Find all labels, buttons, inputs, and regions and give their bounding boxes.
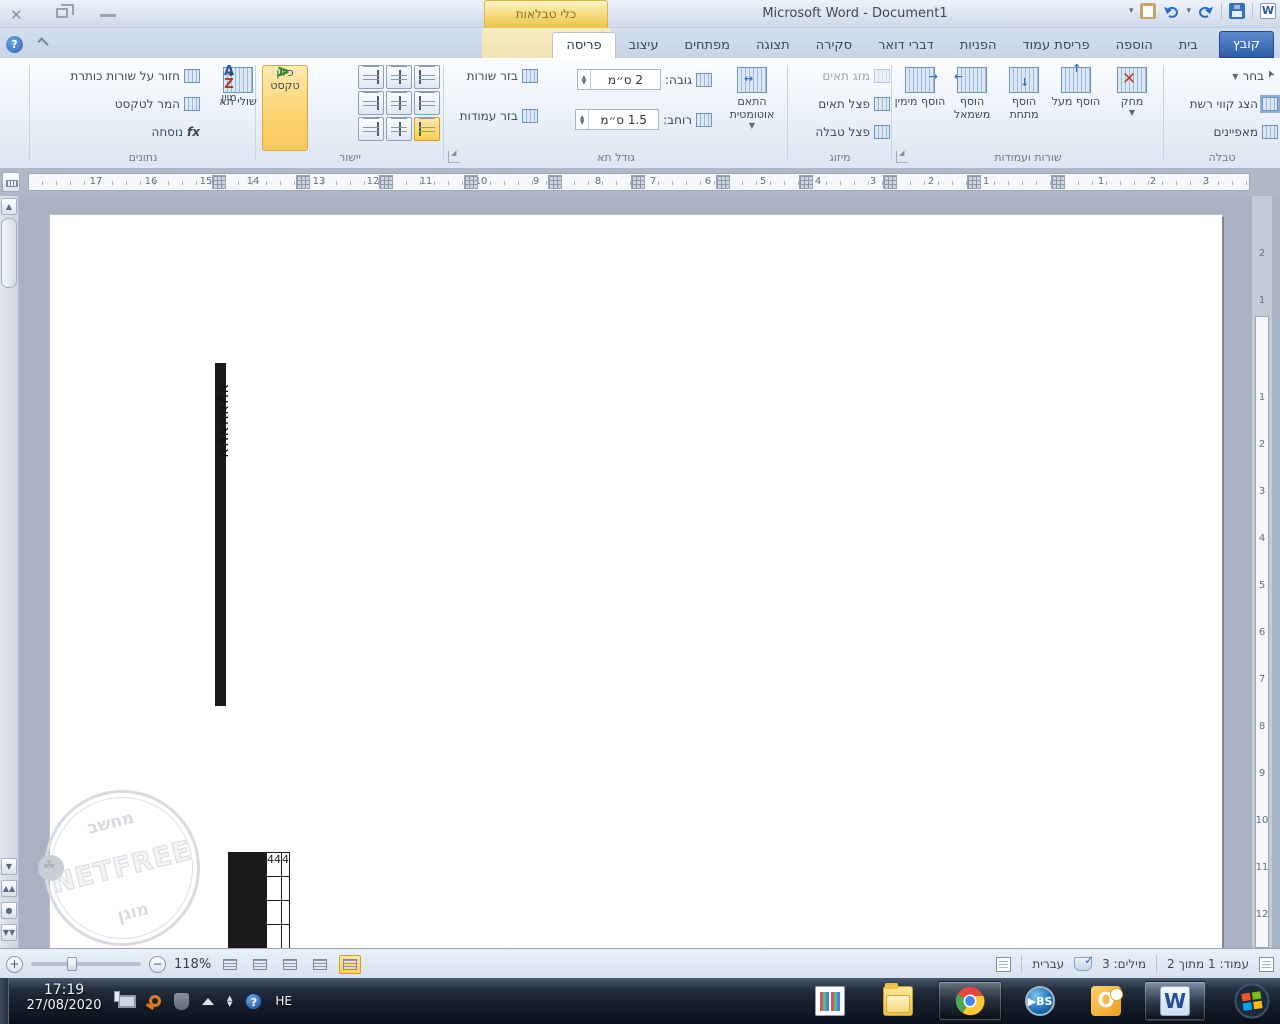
- undo-icon[interactable]: [1163, 4, 1179, 19]
- ribbon-group-alignment: A כיוון טקסט שולי תא יישור: [258, 61, 442, 165]
- ruler-number: 3: [1252, 486, 1272, 497]
- previous-page-icon[interactable]: ▲▲: [1, 880, 17, 897]
- autofit-button[interactable]: ↔ התאם אוטומטית ▼: [720, 65, 784, 151]
- tab-home[interactable]: בית: [1166, 33, 1211, 58]
- ruler-number: 10: [1252, 815, 1272, 826]
- ruler-number: 1: [1252, 295, 1272, 306]
- chevron-down-icon: ▼: [1232, 72, 1238, 81]
- ribbon: בחר▼ הצג קווי רשת מאפיינים טבלה ✕ מחק ▼ …: [0, 58, 1280, 168]
- zoom-in-icon[interactable]: +: [6, 956, 23, 973]
- zoom-percentage[interactable]: 118%: [174, 957, 211, 972]
- taskbar-app-explorer[interactable]: [874, 981, 922, 1021]
- split-cells-button[interactable]: פצל תאים: [818, 97, 890, 111]
- ribbon-group-data: AZ↓ מיין חזור על שורות כותרת המר לטקסט f…: [32, 61, 254, 165]
- insert-right-icon: →: [905, 67, 935, 93]
- shield-tray-icon[interactable]: [174, 993, 189, 1010]
- watermark-leaf-icon: [38, 855, 64, 881]
- group-label-alignment: יישור: [258, 151, 442, 164]
- hidden-icons-chevron[interactable]: [202, 998, 214, 1005]
- table-cell[interactable]: [225, 479, 226, 504]
- titlebar: ✕ כלי טבלאות Microsoft Word - Document1 …: [0, 0, 1280, 28]
- convert-to-text-icon: [184, 97, 200, 111]
- ruler-number: 12: [1252, 909, 1272, 920]
- ruler-number: 11: [1252, 862, 1272, 873]
- ruler-number: 14: [247, 176, 260, 187]
- ruler-number: 4: [1252, 533, 1272, 544]
- insert-right-button[interactable]: → הוסף מימין: [894, 65, 946, 151]
- view-outline-icon[interactable]: [249, 955, 271, 974]
- tab-review[interactable]: סקירה: [803, 33, 865, 58]
- row-height-icon: [696, 73, 712, 87]
- ruler-number: 1: [983, 176, 989, 187]
- table-cell[interactable]: [267, 877, 282, 901]
- zoom-slider[interactable]: [31, 962, 141, 966]
- column-width-spinner[interactable]: ▲▼ 1.5 ס״מ: [575, 109, 659, 130]
- tray-arrows-icon[interactable]: ▲▼: [227, 995, 232, 1007]
- horizontal-ruler[interactable]: 1716151413121110987654321123: [28, 173, 1250, 191]
- zoom-out-icon[interactable]: −: [149, 956, 166, 973]
- table-cell[interactable]: 44: [267, 853, 282, 877]
- ribbon-group-cell-size: ↔ התאם אוטומטית ▼ גובה: ▲▼ 2 ס״מ רוחב: ▲…: [446, 61, 786, 165]
- taskbar-app-chrome[interactable]: [938, 981, 1002, 1021]
- taskbar-app-calculator[interactable]: [806, 981, 854, 1021]
- formula-button[interactable]: fx נוסחה: [151, 125, 200, 139]
- qat-customize-icon[interactable]: ▾: [1129, 6, 1134, 16]
- taskbar: 17:19 27/08/2020 ▲▼ ? HE ▶BS O W: [0, 978, 1280, 1024]
- table-cell[interactable]: [282, 877, 290, 901]
- page-indicator[interactable]: עמוד: 1 מתוך 2: [1167, 957, 1249, 971]
- delete-button[interactable]: ✕ מחק ▼: [1106, 65, 1158, 151]
- column-marker-icon[interactable]: [631, 175, 645, 189]
- ruler-number: 4: [815, 176, 821, 187]
- select-browse-object-icon[interactable]: ●: [1, 902, 17, 919]
- insert-below-button[interactable]: ↓ הוסף מתחת: [998, 65, 1050, 151]
- sort-az-icon: AZ↓: [224, 64, 234, 92]
- zoom-slider-thumb[interactable]: [67, 957, 77, 971]
- ruler-number: 2: [928, 176, 934, 187]
- word-count[interactable]: מילים: 3: [1102, 957, 1146, 971]
- ruler-number: 3: [870, 176, 876, 187]
- language-indicator[interactable]: עברית: [1032, 957, 1064, 971]
- ruler-number: 3: [1203, 176, 1209, 187]
- save-icon[interactable]: [1229, 3, 1245, 19]
- close-window-icon[interactable]: ✕: [10, 6, 23, 24]
- help-tray-icon[interactable]: ?: [245, 993, 262, 1010]
- help-icon[interactable]: ?: [6, 36, 23, 53]
- split-cells-icon: [874, 97, 890, 111]
- table-cell[interactable]: [225, 504, 226, 530]
- contextual-tab-group-header: כלי טבלאות: [484, 0, 608, 28]
- view-web-layout-icon[interactable]: [279, 955, 301, 974]
- distribute-columns-icon: [522, 109, 538, 123]
- table-properties-button[interactable]: מאפיינים: [1214, 125, 1278, 139]
- taskbar-app-outlook[interactable]: O: [1082, 981, 1130, 1021]
- chrome-icon: [955, 986, 985, 1016]
- quick-access-toolbar: ▾ ▾ W: [1129, 3, 1276, 19]
- column-marker-icon[interactable]: [464, 175, 478, 189]
- align-center-button[interactable]: [386, 91, 412, 115]
- align-center-left-button[interactable]: [414, 91, 440, 115]
- input-language-indicator[interactable]: HE: [275, 994, 292, 1008]
- windows-start-icon: [1234, 983, 1270, 1019]
- view-gridlines-button[interactable]: הצג קווי רשת: [1190, 97, 1278, 111]
- select-cursor-icon: [1268, 69, 1278, 83]
- ruler-number: 7: [1252, 674, 1272, 685]
- align-bottom-center-button[interactable]: [386, 117, 412, 141]
- ruler-number: 2: [1252, 439, 1272, 450]
- ruler-number: 5: [760, 176, 766, 187]
- ribbon-tab-row: ? קובץ בית הוספה פריסת עמוד הפניות דברי …: [0, 28, 1280, 58]
- ruler-number: 2: [1150, 176, 1156, 187]
- align-bottom-left-button[interactable]: [414, 117, 440, 141]
- table-cell[interactable]: [225, 581, 226, 606]
- start-button[interactable]: [1224, 981, 1280, 1021]
- table-cell[interactable]: 4: [282, 853, 290, 877]
- column-marker-icon[interactable]: [799, 175, 813, 189]
- taskbar-app-bs[interactable]: ▶BS: [1016, 981, 1064, 1021]
- group-label-table: טבלה: [1166, 151, 1278, 164]
- vertical-ruler[interactable]: 21123456789101112: [1252, 196, 1272, 948]
- sort-button[interactable]: AZ↓ מיין: [206, 65, 252, 151]
- folder-icon: [883, 986, 913, 1016]
- restore-window-icon[interactable]: [56, 8, 68, 18]
- insert-below-icon: ↓: [1009, 67, 1039, 93]
- spellcheck-icon[interactable]: [1074, 957, 1092, 971]
- scroll-down-icon[interactable]: ▼: [1, 858, 17, 875]
- align-top-center-button[interactable]: [386, 65, 412, 89]
- document-canvas: אעאעאעא 444 מחשב NETFREE מוגן: [19, 196, 1252, 948]
- distribute-rows-icon: [522, 69, 538, 83]
- tab-table-design[interactable]: עיצוב: [616, 33, 672, 58]
- word-app-icon[interactable]: W: [1260, 3, 1276, 19]
- split-table-button[interactable]: פצל טבלה: [815, 125, 890, 139]
- scrollbar-thumb[interactable]: [1, 218, 17, 288]
- ruler-number: 9: [1252, 768, 1272, 779]
- table-cell[interactable]: [282, 925, 290, 949]
- tab-mailings[interactable]: דברי דואר: [865, 33, 947, 58]
- ruler-number: 17: [90, 176, 103, 187]
- ribbon-group-merge: מזג תאים פצל תאים פצל טבלה מיזוג: [790, 61, 890, 165]
- tab-table-layout[interactable]: פריסה: [552, 32, 615, 58]
- row-height-spinner[interactable]: ▲▼ 2 ס״מ: [577, 69, 661, 90]
- rotated-cell-text: אעאעאעא: [216, 383, 234, 458]
- ruler-number: 7: [650, 176, 656, 187]
- bs-player-icon: ▶BS: [1025, 986, 1055, 1016]
- ruler-number: 12: [367, 176, 380, 187]
- convert-to-text-button[interactable]: המר לטקסט: [115, 97, 200, 111]
- network-tray-icon[interactable]: [118, 995, 136, 1008]
- distribute-columns-button[interactable]: בזר עמודות: [460, 109, 538, 123]
- repeat-header-icon: [184, 69, 200, 83]
- undo-dropdown-icon[interactable]: ▾: [1186, 6, 1191, 16]
- ruler-number: 8: [595, 176, 601, 187]
- cell-alignment-grid: [358, 65, 444, 143]
- column-marker-icon[interactable]: [716, 175, 730, 189]
- tab-insert[interactable]: הוספה: [1103, 33, 1166, 58]
- view-fullscreen-reading-icon[interactable]: [309, 955, 331, 974]
- column-marker-icon[interactable]: [883, 175, 897, 189]
- distribute-rows-button[interactable]: בזר שורות: [467, 69, 538, 83]
- insert-left-icon: ←: [957, 67, 987, 93]
- ruler-number: 6: [705, 176, 711, 187]
- autofit-icon: ↔: [737, 67, 767, 93]
- column-width-icon: [696, 113, 712, 127]
- insert-left-button[interactable]: ← הוסף משמאל: [946, 65, 998, 151]
- ribbon-group-rows-columns: ✕ מחק ▼ ↑ הוסף מעל ↓ הוסף מתחת ← הוסף מש…: [894, 61, 1162, 165]
- redo-icon[interactable]: [1198, 4, 1214, 19]
- tab-page-layout[interactable]: פריסת עמוד: [1010, 33, 1103, 58]
- column-marker-icon[interactable]: [212, 175, 226, 189]
- scroll-up-icon[interactable]: ▲: [1, 198, 17, 215]
- insert-above-button[interactable]: ↑ הוסף מעל: [1050, 65, 1102, 151]
- word-taskbar-icon: W: [1160, 986, 1190, 1016]
- tab-references[interactable]: הפניות: [947, 33, 1010, 58]
- text-direction-button[interactable]: A כיוון טקסט: [262, 65, 308, 151]
- view-draft-icon[interactable]: [219, 955, 241, 974]
- tab-developer[interactable]: מפתחים: [671, 33, 743, 58]
- table-cell[interactable]: אעאעאעא: [225, 364, 226, 479]
- vertical-scrollbar[interactable]: ▲ ▼ ▲▲ ● ▼▼: [0, 196, 19, 948]
- word-window: ✕ כלי טבלאות Microsoft Word - Document1 …: [0, 0, 1280, 1024]
- column-width-control: רוחב: ▲▼ 1.5 ס״מ: [575, 109, 712, 130]
- ruler-number: 6: [1252, 627, 1272, 638]
- align-top-right-button[interactable]: [358, 65, 384, 89]
- merge-cells-button[interactable]: מזג תאים: [822, 69, 890, 83]
- show-desktop-button[interactable]: [0, 978, 9, 1024]
- table-cell[interactable]: [225, 606, 226, 632]
- insert-above-icon: ↑: [1061, 67, 1091, 93]
- table-cell[interactable]: [267, 925, 282, 949]
- ruler-number: 1: [1252, 392, 1272, 403]
- view-ruler-toggle[interactable]: [2, 172, 20, 192]
- ruler-number: 15: [200, 176, 213, 187]
- repeat-header-rows-button[interactable]: חזור על שורות כותרת: [70, 69, 200, 83]
- split-table-icon: [874, 125, 890, 139]
- next-page-icon[interactable]: ▼▼: [1, 924, 17, 941]
- select-button[interactable]: בחר▼: [1232, 69, 1278, 83]
- window-title: Microsoft Word - Document1: [690, 6, 1020, 21]
- column-marker-icon[interactable]: [296, 175, 310, 189]
- ruler-number: 16: [145, 176, 158, 187]
- column-marker-icon[interactable]: [379, 175, 393, 189]
- collapse-ribbon-icon[interactable]: [37, 37, 48, 48]
- table-cell[interactable]: [225, 632, 226, 706]
- column-marker-icon[interactable]: [1051, 175, 1065, 189]
- paste-icon[interactable]: [1140, 3, 1156, 19]
- ruler-number: 13: [313, 176, 326, 187]
- formula-fx-icon: fx: [187, 125, 200, 139]
- page-number-icon[interactable]: [1259, 957, 1274, 972]
- document-page[interactable]: אעאעאעא 444 מחשב NETFREE מוגן: [50, 215, 1222, 948]
- minimize-window-icon[interactable]: [100, 14, 116, 17]
- taskbar-app-word[interactable]: W: [1144, 981, 1206, 1021]
- properties-icon: [1262, 125, 1278, 139]
- ruler-number: 5: [1252, 580, 1272, 591]
- group-label-data: נתונים: [32, 151, 254, 164]
- ruler-number: 8: [1252, 721, 1272, 732]
- group-label-cell-size: גודל תא: [446, 151, 786, 164]
- ruler-number: 2: [1252, 248, 1272, 259]
- column-marker-icon[interactable]: [967, 175, 981, 189]
- table-cell[interactable]: [267, 901, 282, 925]
- ruler-number: 11: [420, 176, 433, 187]
- taskbar-clock[interactable]: 17:19 27/08/2020: [14, 982, 114, 1013]
- group-label-merge: מיזוג: [790, 151, 890, 164]
- ribbon-group-table: בחר▼ הצג קווי רשת מאפיינים טבלה: [1166, 61, 1278, 165]
- view-print-layout-icon[interactable]: [339, 955, 361, 974]
- system-tray: ▲▼ ? HE: [118, 978, 292, 1024]
- macro-recording-icon[interactable]: [996, 957, 1011, 972]
- tab-file[interactable]: קובץ: [1219, 31, 1274, 58]
- status-bar: עמוד: 1 מתוך 2 מילים: 3 עברית + − 118%: [0, 948, 1280, 978]
- outlook-icon: O: [1091, 986, 1121, 1016]
- magnifier-tray-icon[interactable]: [149, 995, 161, 1007]
- group-label-rows-columns: שורות ועמודות: [894, 151, 1162, 164]
- align-center-right-button[interactable]: [358, 91, 384, 115]
- calculator-icon: [815, 986, 845, 1016]
- tab-view[interactable]: תצוגה: [743, 33, 803, 58]
- column-marker-icon[interactable]: [548, 175, 562, 189]
- ruler-number: 1: [1098, 176, 1104, 187]
- table-cell[interactable]: [225, 555, 226, 581]
- delete-table-icon: ✕: [1117, 67, 1147, 93]
- align-top-left-button[interactable]: [414, 65, 440, 89]
- ruler-number: 9: [533, 176, 539, 187]
- table-cell[interactable]: [225, 530, 226, 555]
- merge-cells-icon: [874, 69, 890, 83]
- table-cell[interactable]: [282, 901, 290, 925]
- row-height-control: גובה: ▲▼ 2 ס״מ: [577, 69, 712, 90]
- align-bottom-right-button[interactable]: [358, 117, 384, 141]
- gridlines-icon: [1262, 97, 1278, 111]
- horizontal-ruler-row: 1716151413121110987654321123: [0, 168, 1280, 196]
